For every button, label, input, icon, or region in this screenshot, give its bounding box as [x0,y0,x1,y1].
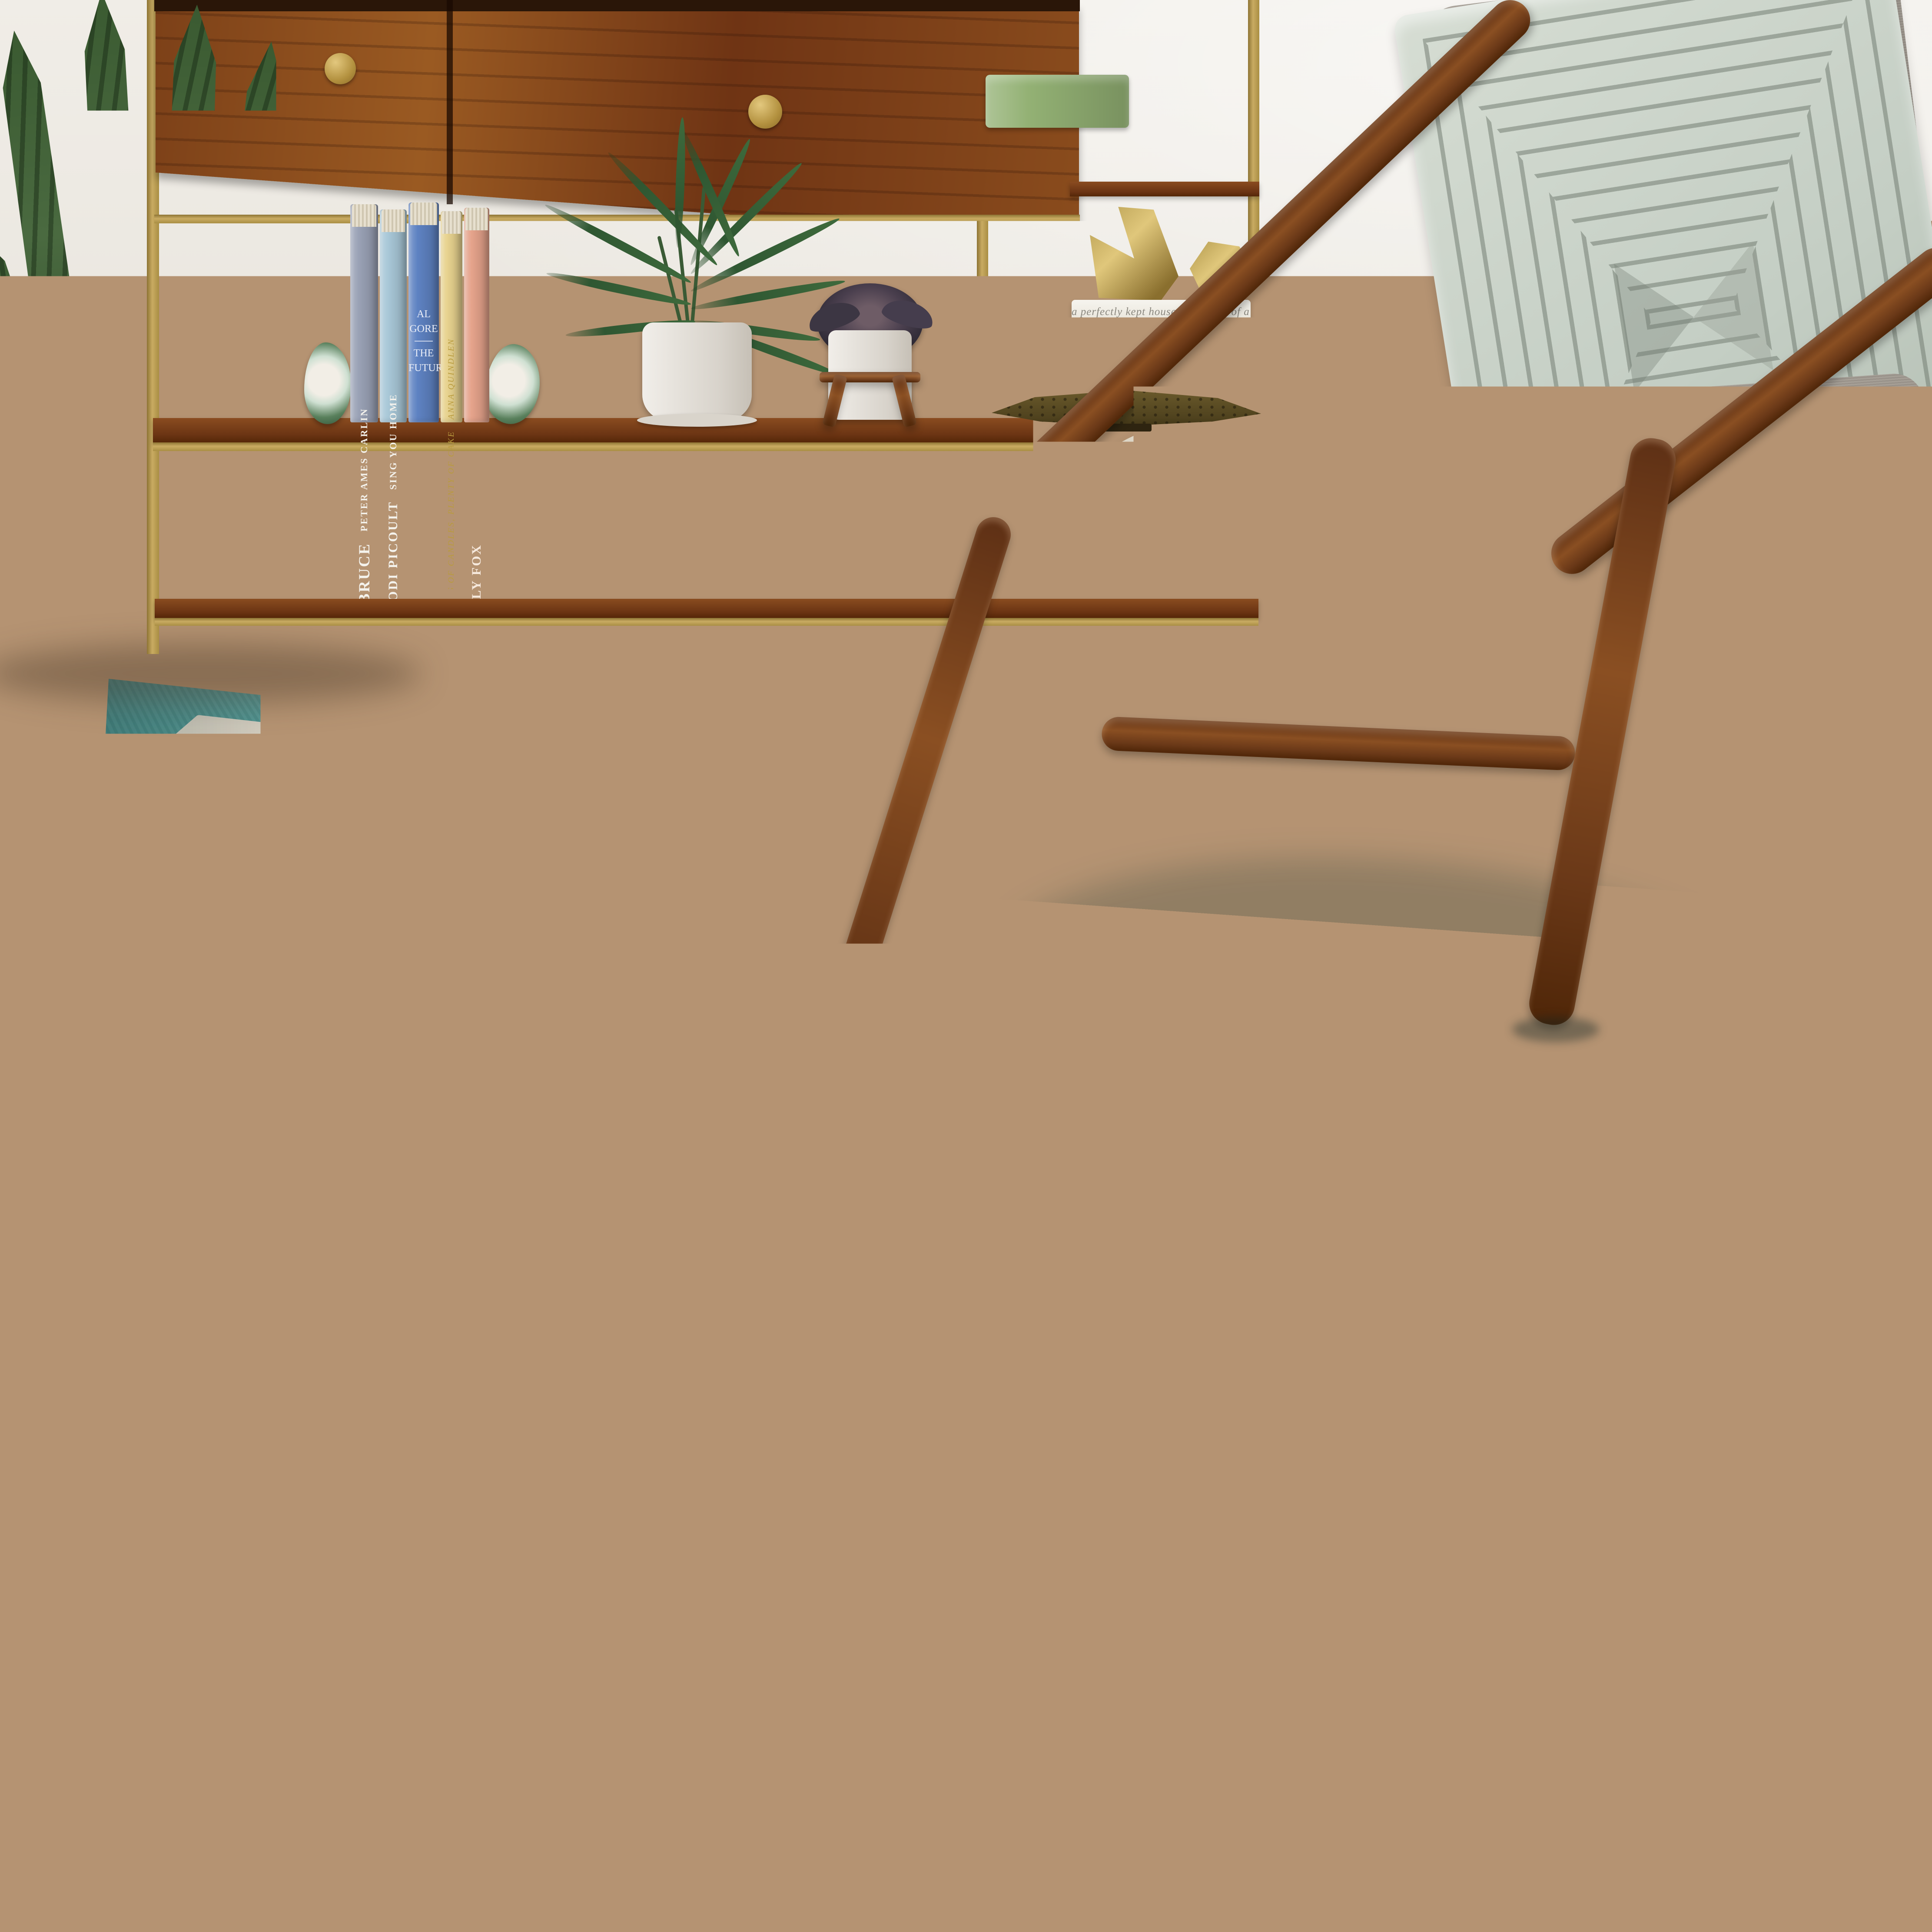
tower-top-rail [1078,0,1259,8]
living-room-scene: A DOG'S JOURNEY W. BRUCE CAMERON PLUM SP… [0,0,1932,1932]
drawer-top-gap [154,0,1080,11]
book-sly-fox: SLY FOX [464,208,489,422]
book-plum-spooky: PLUM SPOOKY JANET EVANOVICH [993,129,1132,179]
leg-contact-shadow [1065,837,1139,858]
drawer-knob-left [325,53,356,84]
palm-saucer [637,414,757,427]
book-a-dogs-journey: A DOG'S JOURNEY W. BRUCE CAMERON [986,75,1129,128]
spine-title: LOTS OF CANDLES, PLENTY OF CAKE [447,431,456,611]
book-author: W. BRUCE CAMERON [1074,90,1132,113]
drawer-seam [447,0,453,204]
book-title: A DOG'S JOURNEY [983,86,1048,116]
palm-pot [642,322,752,421]
book-lots-of-candles: LOTS OF CANDLES, PLENTY OF CAKEANNA QUIN… [441,211,462,422]
leg-contact-shadow [795,1065,878,1089]
book-title: PLUM SPOOKY [991,140,1045,168]
spine-author: ANNA QUINDLEN [447,338,456,419]
spine-title: SLY FOX [469,544,484,607]
book-author: JANET EVANOVICH [1071,143,1134,165]
leg-contact-shadow [1512,1017,1599,1042]
drawer-knob-right [748,95,782,129]
tower-shelf-1 [1070,182,1259,196]
rug-color-block-beige [823,1134,1164,1326]
